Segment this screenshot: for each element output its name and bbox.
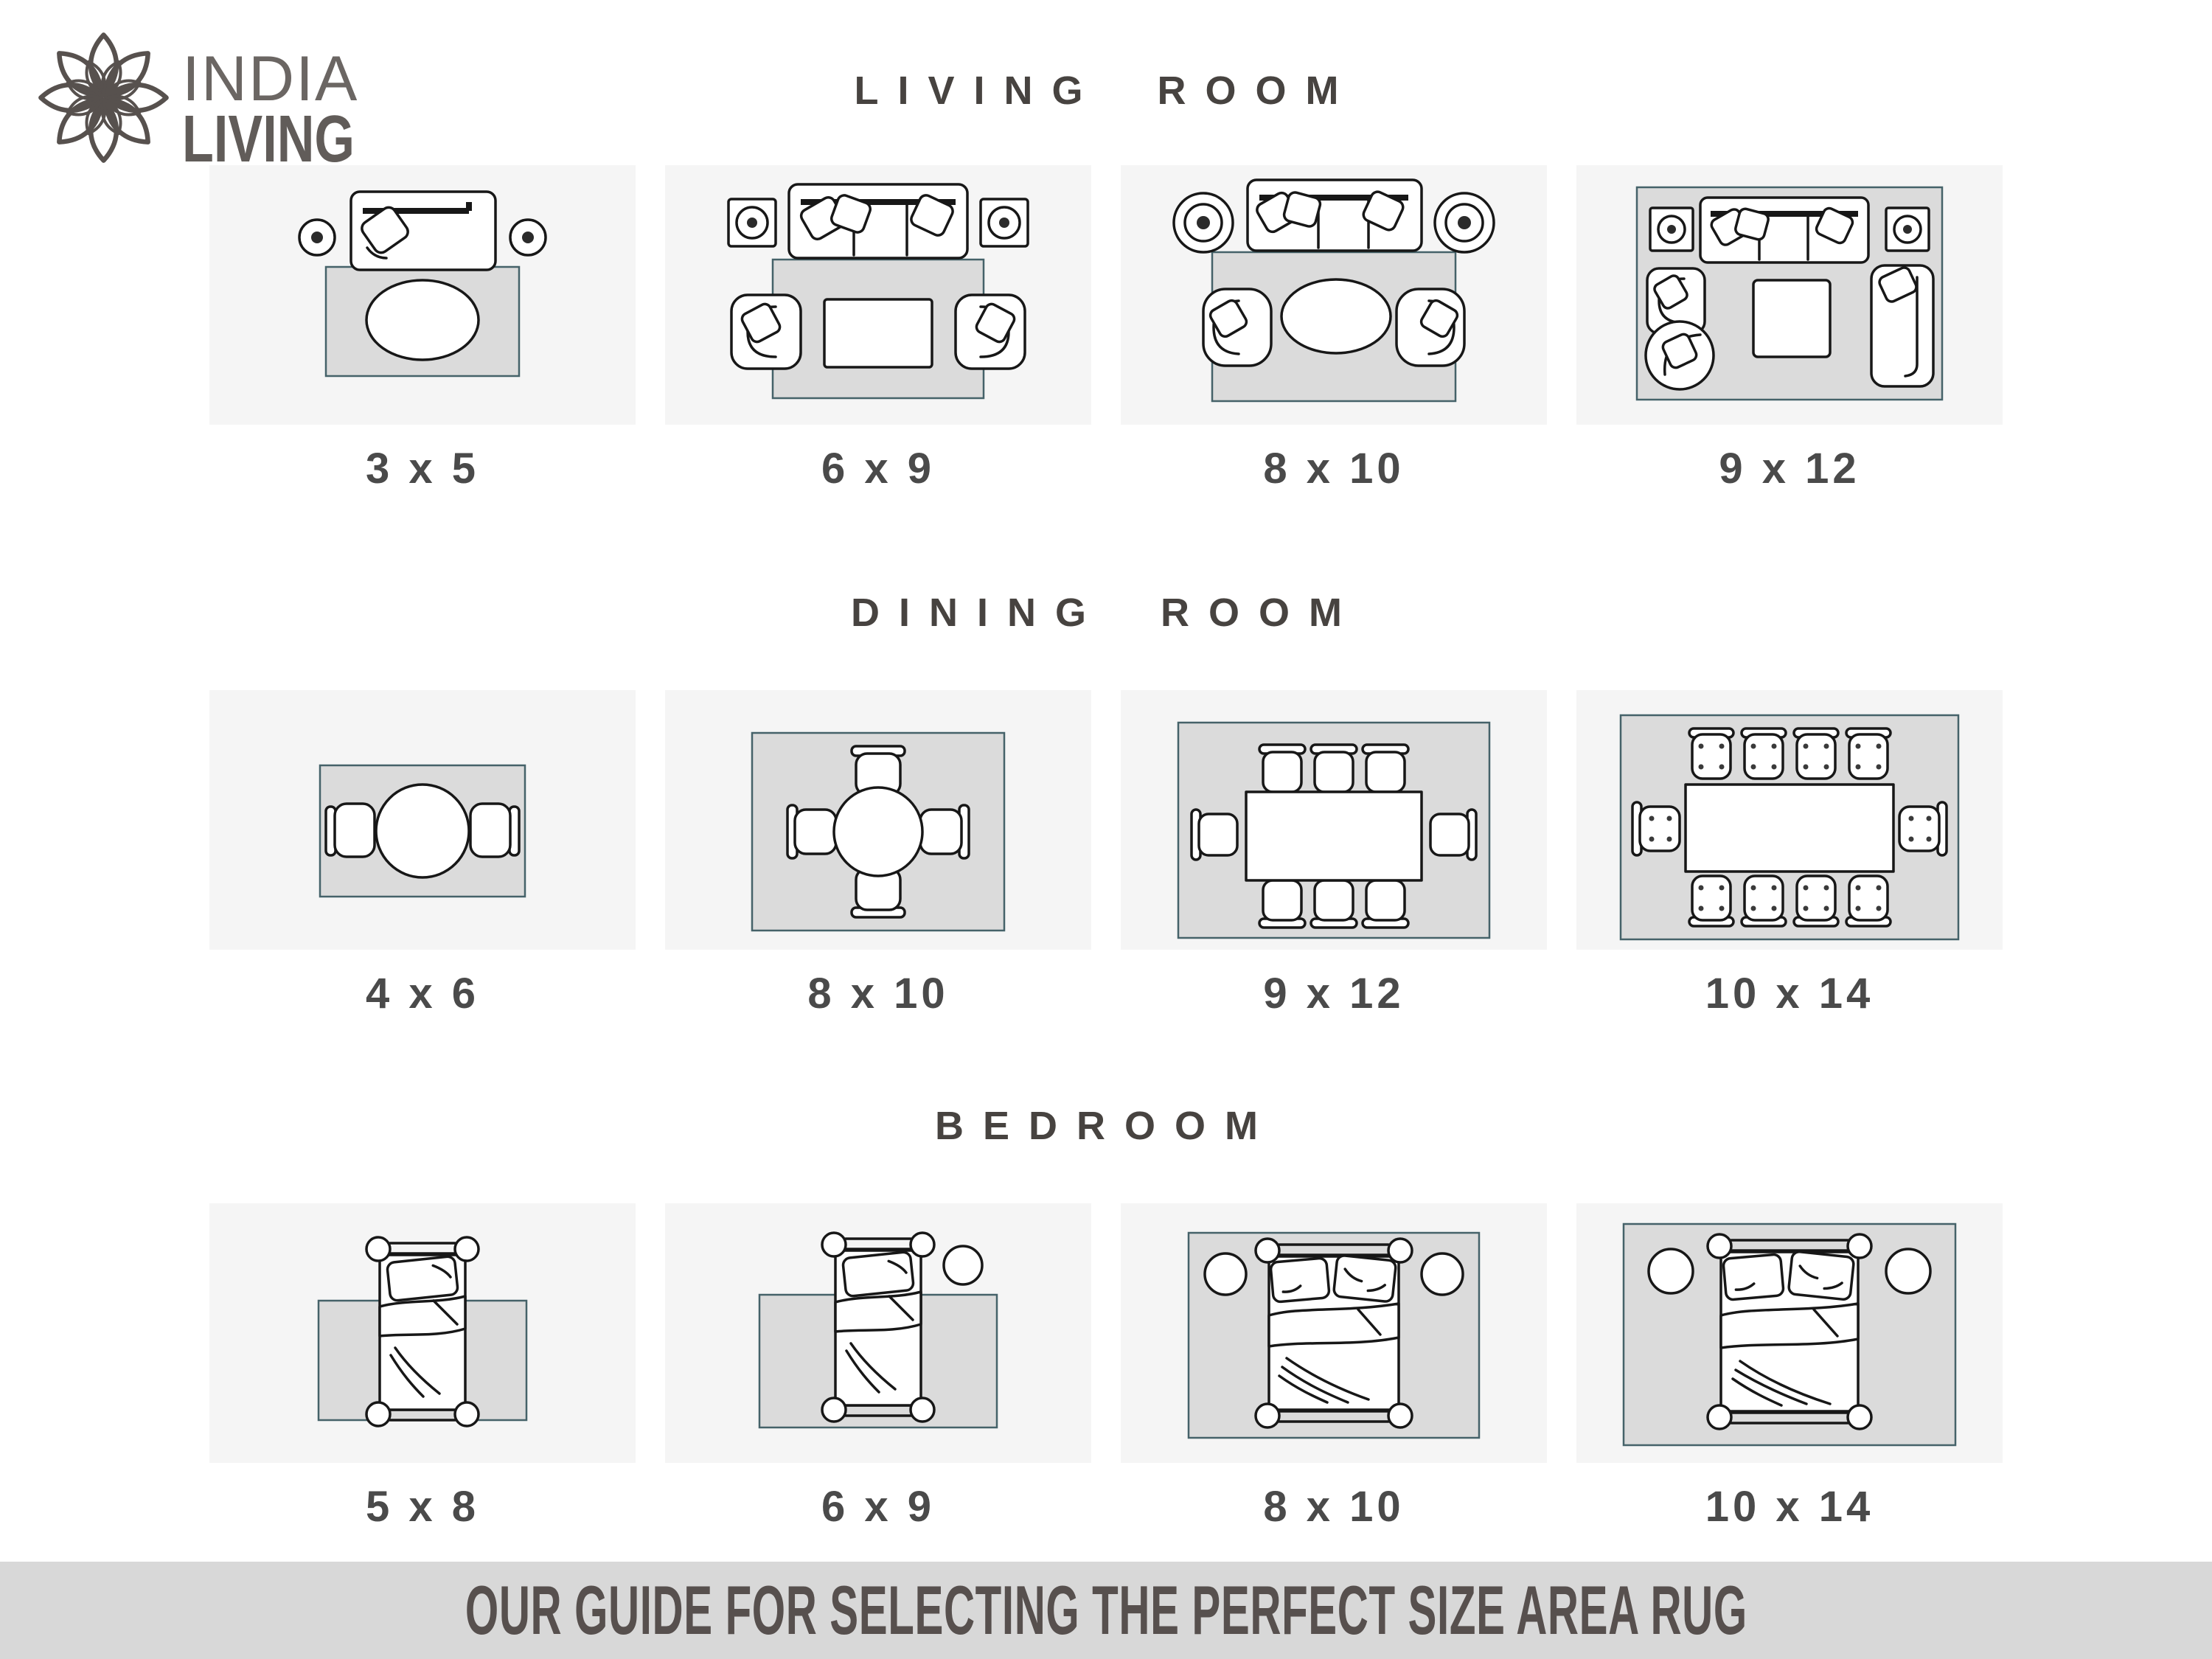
rug-tile-living-3x5: 3 x 5 <box>209 165 636 493</box>
armchair-left <box>1203 289 1271 366</box>
round-dining-table <box>834 787 922 876</box>
rug-tile-dining-8x10: 8 x 10 <box>665 690 1091 1018</box>
diagram-panel <box>209 690 636 950</box>
size-label: 9 x 12 <box>1263 969 1404 1018</box>
rug-diagram-living-6x9 <box>665 165 1091 425</box>
dining-chair-left <box>326 804 375 857</box>
rug-diagram-dining-10x14 <box>1576 690 2003 950</box>
rug-diagram-bedroom-6x9 <box>665 1203 1091 1463</box>
diagram-panel <box>665 690 1091 950</box>
living-room-row: 3 x 5 <box>0 165 2212 493</box>
oval-coffee-table <box>1281 279 1391 353</box>
round-side-table <box>299 220 335 255</box>
size-label: 10 x 14 <box>1705 1482 1874 1531</box>
size-label: 9 x 12 <box>1719 444 1860 493</box>
rug-diagram-bedroom-5x8 <box>209 1203 636 1463</box>
rect-dining-table <box>1246 792 1422 880</box>
rug-tile-dining-9x12: 9 x 12 <box>1121 690 1547 1018</box>
size-label: 3 x 5 <box>366 444 479 493</box>
size-label: 8 x 10 <box>1263 444 1404 493</box>
rug-diagram-bedroom-10x14 <box>1576 1203 2003 1463</box>
round-nightstand-left <box>1649 1249 1693 1293</box>
round-side-table <box>1435 193 1494 252</box>
rug-tile-living-9x12: 9 x 12 <box>1576 165 2003 493</box>
round-dining-table <box>376 785 469 877</box>
diagram-panel <box>1121 690 1547 950</box>
armchair-right <box>1397 289 1464 366</box>
round-side-table <box>944 1246 982 1284</box>
rect-dining-table <box>1686 785 1893 872</box>
diagram-panel <box>1576 165 2003 425</box>
coffee-table <box>824 299 932 367</box>
rug-diagram-living-3x5 <box>209 165 636 425</box>
size-label: 6 x 9 <box>821 1482 935 1531</box>
round-swivel-chair <box>1646 321 1714 389</box>
rug-diagram-dining-9x12 <box>1121 690 1547 950</box>
footer-banner: OUR GUIDE FOR SELECTING THE PERFECT SIZE… <box>0 1562 2212 1659</box>
section-title-living-room: LIVING ROOM <box>0 68 2212 114</box>
size-label: 5 x 8 <box>366 1482 479 1531</box>
size-label: 8 x 10 <box>1263 1482 1404 1531</box>
rug-tile-bedroom-5x8: 5 x 8 <box>209 1203 636 1531</box>
size-label: 8 x 10 <box>807 969 948 1018</box>
square-coffee-table <box>1753 280 1830 357</box>
armchair-right <box>956 295 1025 369</box>
dining-chair-left <box>1632 802 1680 855</box>
dining-chair-right <box>920 805 969 858</box>
king-bed <box>1708 1234 1871 1429</box>
round-nightstand-right <box>1886 1249 1930 1293</box>
round-nightstand-right <box>1422 1253 1463 1295</box>
sofa <box>1248 180 1422 251</box>
rug-tile-living-8x10: 8 x 10 <box>1121 165 1547 493</box>
diagram-panel <box>1576 1203 2003 1463</box>
diagram-panel <box>1121 165 1547 425</box>
dining-chairs-bottom <box>1259 880 1408 928</box>
section-title-bedroom: BEDROOM <box>0 1103 2212 1149</box>
sofa <box>789 184 967 258</box>
footer-tagline: OUR GUIDE FOR SELECTING THE PERFECT SIZE… <box>465 1571 1747 1650</box>
diagram-panel <box>1576 690 2003 950</box>
square-side-table <box>1650 208 1693 251</box>
dining-chairs-top <box>1259 745 1408 792</box>
rug-tile-bedroom-6x9: 6 x 9 <box>665 1203 1091 1531</box>
dining-chair-right <box>470 804 519 857</box>
square-side-table <box>981 199 1028 246</box>
twin-bed <box>366 1237 479 1426</box>
rug-diagram-living-8x10 <box>1121 165 1547 425</box>
rug-tile-bedroom-10x14: 10 x 14 <box>1576 1203 2003 1531</box>
dining-chair-right <box>1899 802 1947 855</box>
round-side-table <box>510 220 546 255</box>
armchair-left <box>731 295 801 369</box>
rug-tile-living-6x9: 6 x 9 <box>665 165 1091 493</box>
dining-chair-right <box>1430 810 1476 860</box>
diagram-panel <box>209 1203 636 1463</box>
size-label: 4 x 6 <box>366 969 479 1018</box>
rug-tile-dining-10x14: 10 x 14 <box>1576 690 2003 1018</box>
square-side-table <box>728 199 776 246</box>
round-side-table <box>1174 193 1233 252</box>
rug-tile-dining-4x6: 4 x 6 <box>209 690 636 1018</box>
sofa <box>1700 198 1868 262</box>
diagram-panel <box>209 165 636 425</box>
rug-diagram-dining-4x6 <box>209 690 636 950</box>
chaise-lounge <box>1871 265 1933 386</box>
section-title-dining-room: DINING ROOM <box>0 590 2212 636</box>
brand-name-bottom: LIVING <box>182 108 355 172</box>
diagram-panel <box>665 165 1091 425</box>
rug-diagram-dining-8x10 <box>665 690 1091 950</box>
square-side-table <box>1886 208 1929 251</box>
rug-diagram-living-9x12 <box>1576 165 2003 425</box>
rug-diagram-bedroom-8x10 <box>1121 1203 1547 1463</box>
diagram-panel <box>1121 1203 1547 1463</box>
dining-chair-left <box>1192 810 1237 860</box>
size-label: 10 x 14 <box>1705 969 1874 1018</box>
rug-tile-bedroom-8x10: 8 x 10 <box>1121 1203 1547 1531</box>
dining-chair-left <box>787 805 836 858</box>
oval-coffee-table <box>366 280 479 360</box>
twin-bed <box>822 1233 934 1422</box>
bedroom-row: 5 x 8 <box>0 1203 2212 1531</box>
dining-room-row: 4 x 6 <box>0 690 2212 1018</box>
size-label: 6 x 9 <box>821 444 935 493</box>
diagram-panel <box>665 1203 1091 1463</box>
queen-bed <box>1256 1239 1412 1427</box>
round-nightstand-left <box>1205 1253 1246 1295</box>
loveseat-sofa <box>351 192 495 270</box>
